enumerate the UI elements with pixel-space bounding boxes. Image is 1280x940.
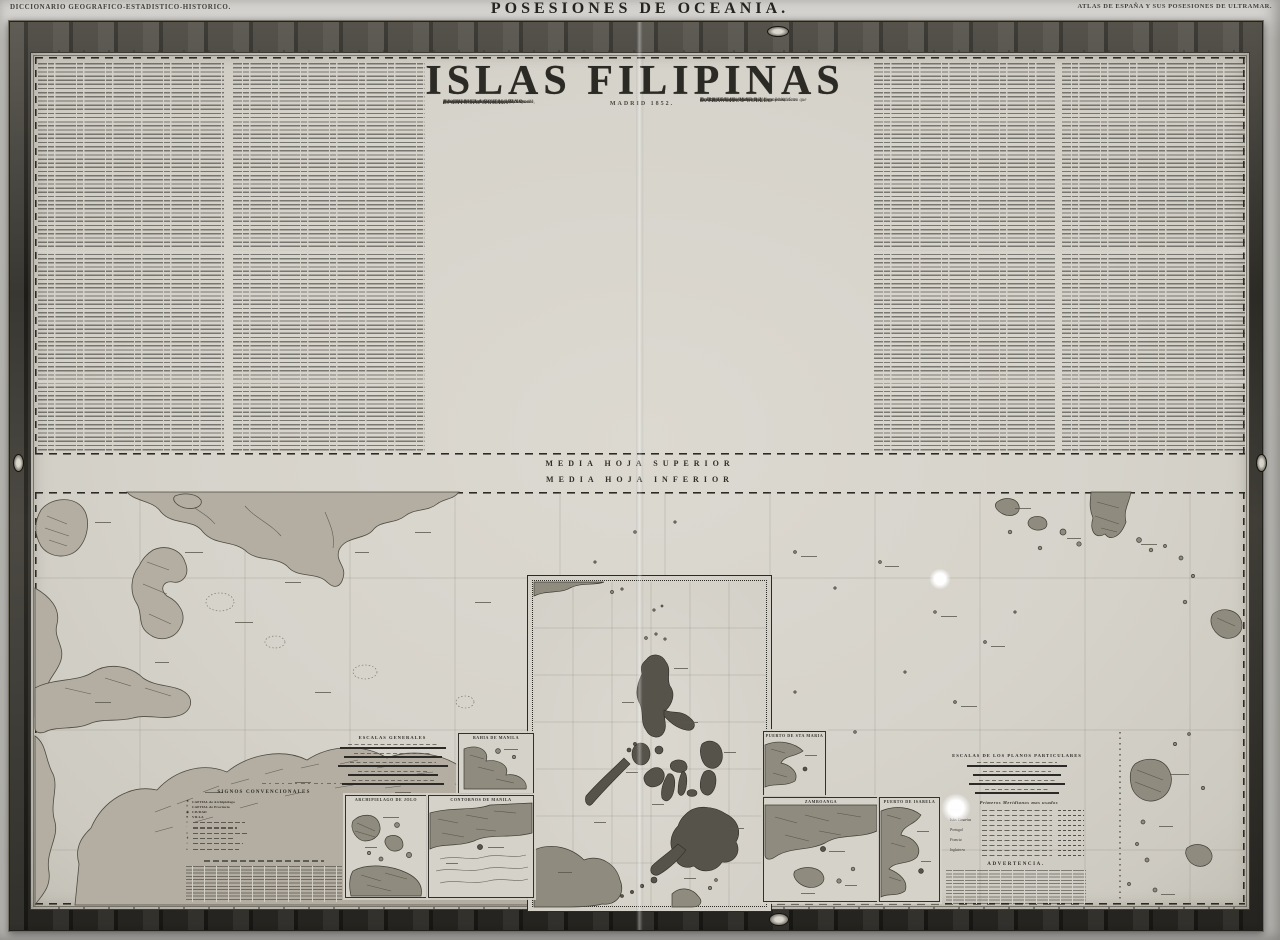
atlas-sheet: DICCIONARIO GEOGRAFICO-ESTADISTICO-HISTO… [0, 0, 1280, 940]
legend-rows-right: ≡ ⚑ ✚ ▮ ⛏ ⊙ ⌖ ∿ ⋄ ∗ [186, 799, 342, 857]
meridians-table: Primeros Meridianos mas usados España Is… [950, 800, 1088, 860]
legend-subheading [204, 860, 324, 862]
advertencia-note: ADVERTENCIA. [944, 862, 1088, 906]
inset-manila-bay: BAHIA DE MANILA [458, 733, 534, 794]
general-scales-block: ESCALAS GENERALES [330, 735, 455, 793]
inset-manila-environs: CONTORNOS DE MANILA [428, 795, 534, 898]
inset-philippines-archipelago [527, 575, 772, 912]
inset-puerto-isabela: PUERTO DE ISABELA [879, 797, 940, 902]
plan-scales-block: ESCALAS DE LOS PLANOS PARTICULARES [947, 753, 1087, 799]
inset-puerto-sta-maria: PUERTO DE STA MARIA [763, 731, 826, 797]
divider-upper-label: MEDIA HOJA SUPERIOR [0, 459, 1280, 468]
text-column [1062, 63, 1246, 451]
frame-medallion-top [767, 26, 789, 37]
inset-jolo-archipelago: ARCHIPIELAGO DE JOLO [345, 795, 427, 898]
inset-zamboanga: ZAMBOANGA [763, 797, 879, 902]
series-title-right: ATLAS DE ESPAÑA Y SUS POSESIONES DE ULTR… [1077, 3, 1272, 10]
text-column [874, 63, 1055, 451]
text-column [233, 63, 425, 451]
legend-notes [186, 866, 342, 902]
graticule-ticks-top [35, 50, 1245, 52]
text-column [38, 63, 224, 451]
map-legend: SIGNOS CONVENCIONALES ★CAPITAL de Archip… [184, 790, 344, 905]
advertencia-text [946, 870, 1086, 904]
divider-lower-label: MEDIA HOJA INFERIOR [0, 475, 1280, 484]
legend-title: SIGNOS CONVENCIONALES [184, 790, 344, 795]
map-date: MADRID 1852. [592, 101, 692, 107]
frame-medallion-bottom [769, 913, 789, 926]
